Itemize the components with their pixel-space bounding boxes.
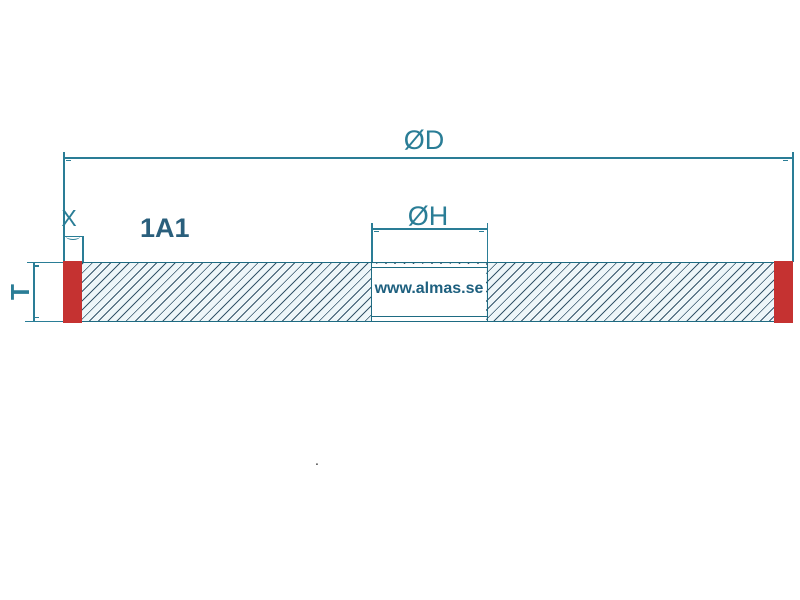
oh-extension-line-left: [371, 223, 373, 262]
wheel-type-label: 1A1: [140, 215, 190, 242]
oh-dimension-label: ØH: [388, 203, 468, 230]
oh-arrow-tick-left: [374, 231, 379, 233]
bore-edge-right: [487, 262, 489, 322]
od-dimension-label: ØD: [384, 127, 464, 154]
od-extension-line-right: [792, 152, 794, 263]
od-arrow-tick-right: [783, 160, 788, 162]
abrasive-segment-right: [774, 261, 793, 324]
stray-dot: .: [312, 452, 322, 470]
x-extension-line-right: [82, 236, 84, 263]
abrasive-segment-left: [63, 261, 82, 324]
watermark-text: www.almas.se: [372, 280, 486, 298]
od-dimension-line: [63, 157, 794, 159]
x-dimension-label: X: [56, 207, 82, 230]
t-extension-line-bottom: [25, 321, 63, 323]
t-arrow-tick-bottom: [35, 317, 39, 319]
oh-extension-line-right: [487, 223, 489, 262]
wheel-drawing-canvas: ØD X 1A1 ØH T www.almas.se .: [0, 0, 800, 600]
t-arrow-tick-top: [35, 265, 39, 267]
oh-arrow-tick-right: [479, 231, 484, 233]
od-arrow-tick-left: [66, 160, 71, 162]
t-dimension-label: T: [7, 274, 33, 310]
x-arrow-tick: [66, 233, 80, 240]
